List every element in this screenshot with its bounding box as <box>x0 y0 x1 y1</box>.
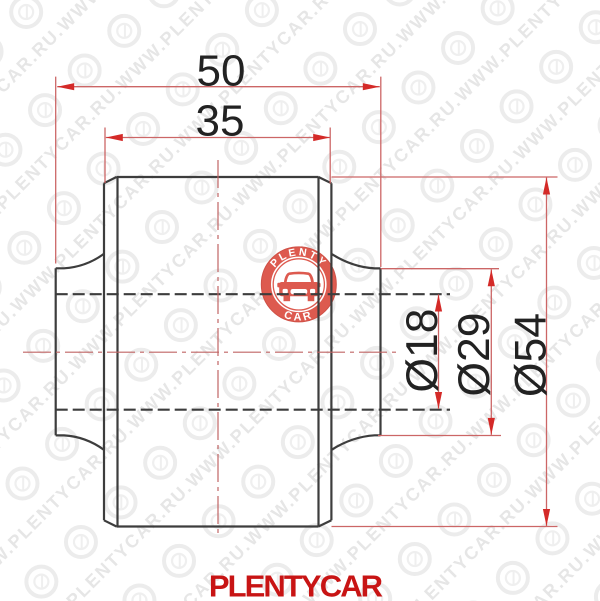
svg-text:Ø29: Ø29 <box>450 312 499 396</box>
svg-text:35: 35 <box>196 97 245 146</box>
svg-text:Ø54: Ø54 <box>507 313 556 397</box>
svg-text:Ø18: Ø18 <box>398 308 447 392</box>
svg-text:PLENTYCAR: PLENTYCAR <box>209 568 383 601</box>
svg-text:50: 50 <box>197 46 246 95</box>
